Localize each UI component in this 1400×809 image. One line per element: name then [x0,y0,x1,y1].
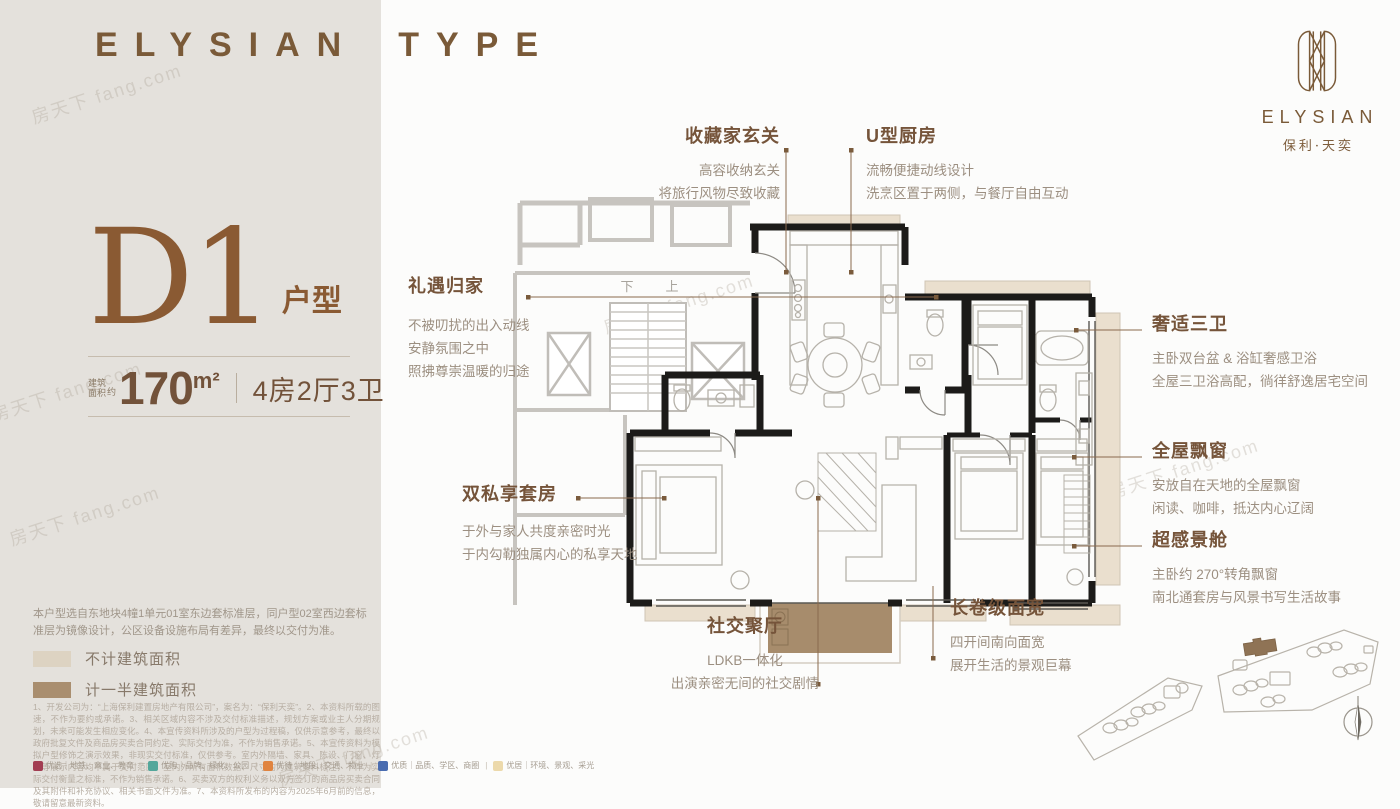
tag-separator: | [370,761,372,770]
callout-living: 社交聚厅 LDKB一体化 出演亲密无间的社交剧情 [660,612,830,695]
bedroom-north [973,305,1027,385]
callout-line: 高容收纳玄关 [590,159,780,182]
tag-label: 优购 [161,760,177,771]
callout-line: 展开生活的景观巨幕 [950,654,1072,677]
legend-item: 计一半建筑面积 [33,679,197,700]
tag-separator: | [255,761,257,770]
tag-sub: 品质、学区、商圈 [415,760,479,771]
callout-line: 安放自在天地的全屋飘窗 [1152,474,1314,497]
master-bedroom [1036,439,1088,585]
tag-label: 优选 [46,760,62,771]
living-room [796,437,942,581]
unit-code-row: D1户型 [88,212,342,344]
footer-tag-strip: 优选｜地铁、商业、教育 | 优购｜品牌、绿化、公园 | 优待｜地段、交通、物业 … [33,760,594,771]
callout-line: 安静氛围之中 [408,337,530,360]
walkin-closet [1064,475,1090,553]
elevator-left-icon [548,333,590,395]
area-approx: 约 [107,385,116,398]
tag-sub: 品牌、绿化、公园 [185,760,249,771]
callout-title: 全屋飘窗 [1152,437,1314,463]
legal-fine-print: 1、开发公司为：“上海保利建置房地产有限公司”，案名为：“保利天奕”。2、本资料… [33,701,380,809]
tag-icon [263,761,273,771]
callout-title: 双私享套房 [462,480,638,506]
elevator-right-icon [692,343,744,399]
site-highlight-building [1243,636,1277,658]
stairs-down-label: 下 [620,279,633,294]
callout-title: 礼遇归家 [408,272,530,298]
tag-label: 优居 [506,760,522,771]
legend-swatch-light [33,651,71,667]
area-unit: m² [193,368,220,394]
tag-separator: | [485,761,487,770]
legend-label: 计一半建筑面积 [85,679,197,700]
site-buildings [1103,642,1373,733]
callout-line: 洗烹区置于两侧，与餐厅自由互动 [866,182,1069,205]
apartment-walls [630,227,1092,603]
callout-line: 于内勾勒独属内心的私享天地 [462,543,638,566]
unit-code: D1 [88,201,272,355]
brand-word: ELYSIAN [95,26,358,64]
footer-tag: 优购｜品牌、绿化、公园 [148,760,249,771]
elysian-floorplan-poster: { "header": { "brand_word": "ELYSIAN", "… [0,0,1400,788]
unit-area-row: 建筑 面积 约 170m² 4房2厅3卫 [88,362,385,414]
callout-line: LDKB一体化 [660,649,830,672]
callout-line: 闲读、咖啡，抵达内心辽阔 [1152,497,1314,520]
tag-sub: 地段、交通、物业 [300,760,364,771]
callout-bath: 奢适三卫 主卧双台盆 & 浴缸奢感卫浴 全屋三卫浴高配，徜徉舒逸居宅空间 [1152,310,1368,393]
site-parcel-west [1078,678,1202,760]
callout-baywindow: 全屋飘窗 安放自在天地的全屋飘窗 闲读、咖啡，抵达内心辽阔 [1152,437,1314,520]
site-plan [1072,616,1384,776]
tag-sub: 环境、景观、采光 [530,760,594,771]
kitchen-counters [790,231,898,385]
tag-label: 优待 [276,760,292,771]
bedroom-two [953,439,1025,539]
callout-facade: 长卷级面宽 四开间南向面宽 展开生活的景观巨幕 [950,594,1072,677]
legend-swatch-dark [33,682,71,698]
logo-cn-name: 保利·天奕 [1252,135,1382,154]
suite-bathroom [674,385,754,411]
tag-label: 优质 [391,760,407,771]
callout-title: 超感景舱 [1152,526,1341,552]
unit-layout-text: 4房2厅3卫 [253,369,385,408]
staircase: 下 上 [610,279,686,411]
divider-line [88,356,350,357]
callout-entry: 收藏家玄关 高容收纳玄关 将旅行风物尽致收藏 [590,122,780,205]
page-title: ELYSIANTYPE [95,26,555,65]
tag-icon [148,761,158,771]
footer-tag: 优选｜地铁、商业、教育 [33,760,134,771]
callout-line: 不被叨扰的出入动线 [408,314,530,337]
callout-line: 南北通套房与风景书写生活故事 [1152,586,1341,609]
brand-logo: ELYSIAN 保利·天奕 [1252,24,1382,154]
tag-icon [33,761,43,771]
legend-item: 不计建筑面积 [33,648,197,669]
callout-homecoming: 礼遇归家 不被叨扰的出入动线 安静氛围之中 照拂尊崇温暖的归途 [408,272,530,383]
area-label-top: 建筑 [88,378,106,388]
callout-title: 收藏家玄关 [590,122,780,148]
bathroom-small [910,310,943,369]
floor-plan: 下 上 [420,185,1140,665]
callout-line: 将旅行风物尽致收藏 [590,182,780,205]
brand-emblem-icon [1289,24,1345,98]
callout-line: 主卧约 270°转角飘窗 [1152,563,1341,586]
callout-line: 四开间南向面宽 [950,631,1072,654]
unit-type-label: 户型 [282,276,342,320]
type-word: TYPE [398,26,555,64]
stairs-up-label: 上 [665,279,678,294]
dining-table [789,323,880,407]
compass-icon [1340,694,1376,746]
footer-tag: 优待｜地段、交通、物业 [263,760,364,771]
callout-line: 照拂尊崇温暖的归途 [408,360,530,383]
divider-line [236,373,237,403]
area-value: 170 [119,365,193,411]
watermark: 房天下 fang.com [600,266,757,339]
tag-separator: | [140,761,142,770]
master-bathroom [1036,331,1092,465]
window-lines [656,321,1095,609]
callout-title: 社交聚厅 [660,612,830,638]
unit-disclaimer: 本户型选自东地块4幢1单元01室东边套标准层，同户型02室西边套标准层为镜像设计… [33,606,373,640]
callout-suite: 双私享套房 于外与家人共度亲密时光 于内勾勒独属内心的私享天地 [462,480,638,566]
tag-sub: 地铁、商业、教育 [70,760,134,771]
logo-wordmark: ELYSIAN [1252,107,1382,128]
callout-kitchen: U型厨房 流畅便捷动线设计 洗烹区置于两侧，与餐厅自由互动 [866,122,1069,205]
callout-line: 流畅便捷动线设计 [866,159,1069,182]
legend-label: 不计建筑面积 [85,648,181,669]
tag-icon [378,761,388,771]
callout-title: U型厨房 [866,122,1069,148]
callout-line: 全屋三卫浴高配，徜徉舒逸居宅空间 [1152,370,1368,393]
area-label-bottom: 面积 [88,388,106,398]
callout-line: 主卧双台盆 & 浴缸奢感卫浴 [1152,347,1368,370]
bedroom-suite [635,437,749,589]
callout-title: 奢适三卫 [1152,310,1368,336]
footer-tag: 优居｜环境、景观、采光 [493,760,594,771]
tag-icon [493,761,503,771]
bay-windows [645,215,1120,625]
area-prefix: 建筑 面积 约 [88,378,116,398]
divider-line [88,416,350,417]
callout-viewcabin: 超感景舱 主卧约 270°转角飘窗 南北通套房与风景书写生活故事 [1152,526,1341,609]
callout-title: 长卷级面宽 [950,594,1072,620]
site-parcel-east [1218,630,1378,712]
callout-line: 出演亲密无间的社交剧情 [660,672,830,695]
door-arcs [710,253,1080,465]
callout-line: 于外与家人共度亲密时光 [462,520,638,543]
footer-tag: 优质｜品质、学区、商圈 [378,760,479,771]
